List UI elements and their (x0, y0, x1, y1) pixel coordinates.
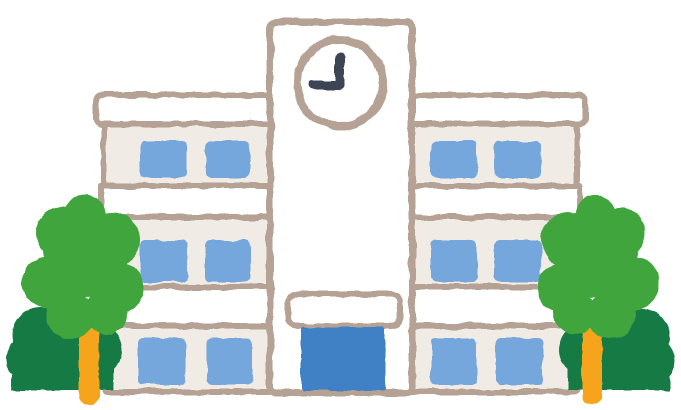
window (431, 338, 477, 385)
window (138, 338, 185, 385)
window (205, 240, 250, 282)
illustration-canvas (0, 0, 681, 410)
window (207, 338, 252, 385)
window (431, 240, 477, 282)
left-wing-floor-band-upper (101, 186, 274, 217)
window (496, 338, 543, 385)
entrance-door (301, 327, 385, 391)
tree-crown-lobe (84, 290, 128, 334)
window (205, 141, 250, 178)
tree-crown-lobe (553, 290, 597, 334)
school-illustration (0, 0, 681, 410)
entrance-canopy (288, 294, 400, 326)
window (494, 240, 541, 282)
window (140, 240, 187, 282)
right-wing-floor-band-upper (407, 186, 580, 217)
window (140, 141, 187, 178)
window (494, 141, 541, 178)
tree-crown-lobe (575, 195, 617, 237)
right-wing-roof-parapet (403, 95, 585, 124)
tree-trunk (582, 328, 602, 404)
clock-tower (270, 22, 412, 393)
left-wing-roof-parapet (96, 95, 278, 124)
tree-trunk (79, 328, 99, 404)
window (431, 141, 477, 178)
tree-crown-lobe (64, 195, 106, 237)
